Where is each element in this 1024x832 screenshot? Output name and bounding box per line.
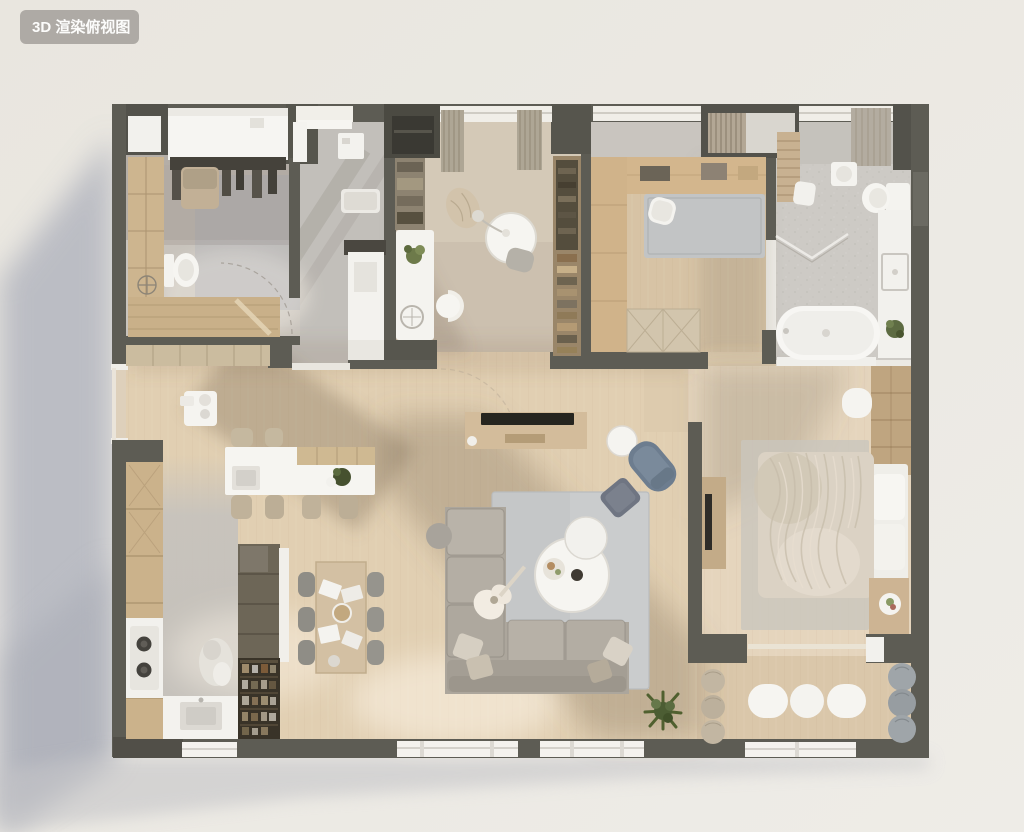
svg-text:3D 渲染俯视图: 3D 渲染俯视图 [32, 18, 130, 36]
